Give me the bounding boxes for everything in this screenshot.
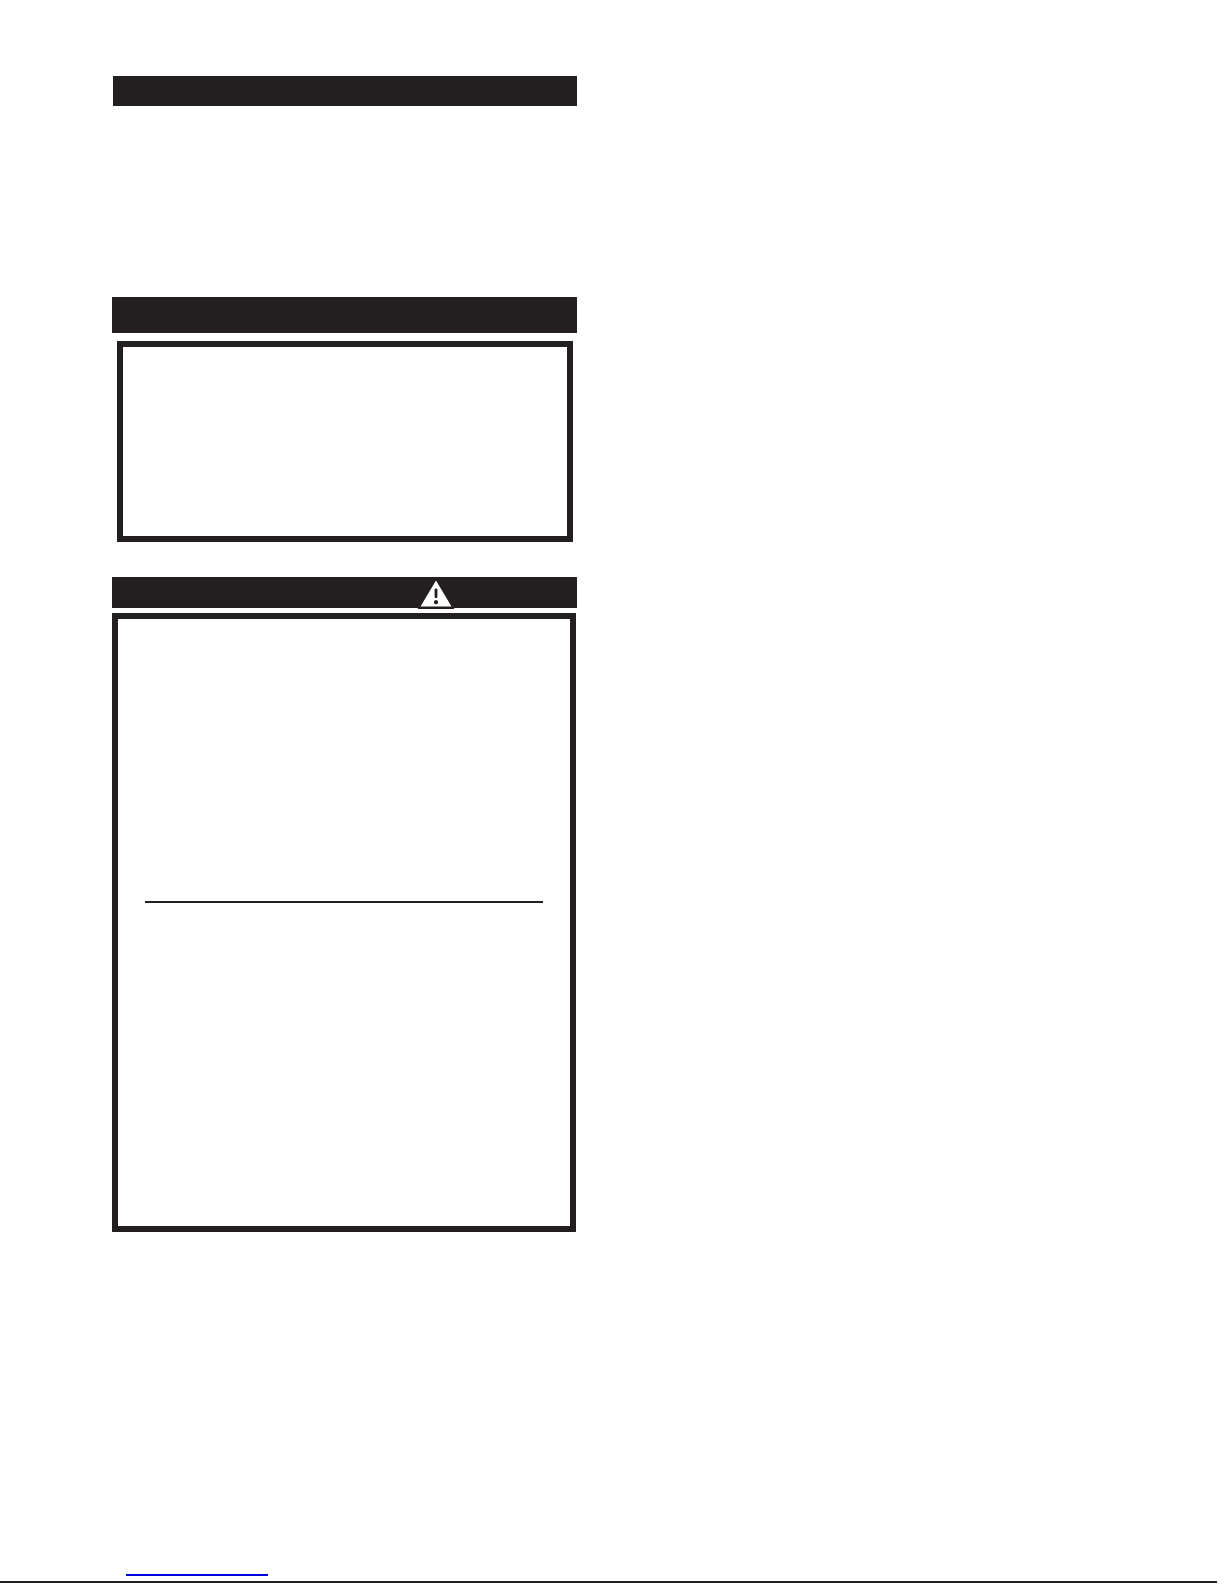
section-header-bar-1 bbox=[113, 76, 577, 106]
document-page bbox=[0, 0, 1225, 1585]
section-header-bar-2 bbox=[112, 297, 577, 333]
warning-box-divider-line bbox=[145, 901, 543, 903]
footer-link-underline[interactable] bbox=[126, 1574, 268, 1576]
warning-triangle-icon bbox=[418, 578, 454, 609]
notice-box bbox=[117, 341, 573, 542]
warning-box bbox=[112, 613, 576, 1232]
page-bottom-edge-line bbox=[0, 1581, 1217, 1583]
warning-header-bar bbox=[112, 577, 577, 608]
